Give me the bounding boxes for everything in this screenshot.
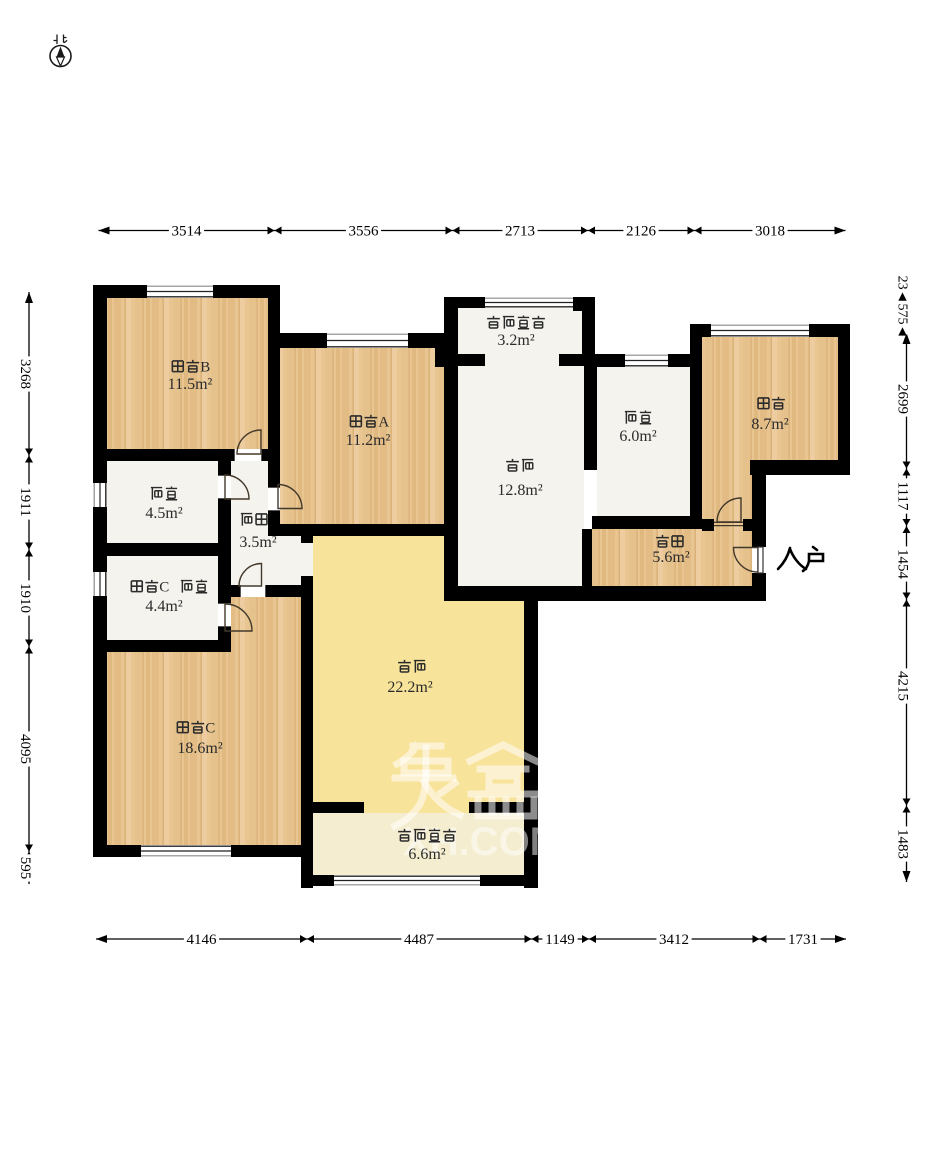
svg-text:5.6m²: 5.6m² xyxy=(652,549,689,566)
svg-text:6.6m²: 6.6m² xyxy=(408,846,445,863)
svg-text:3514: 3514 xyxy=(172,224,203,240)
svg-text:11.5m²: 11.5m² xyxy=(168,376,213,393)
svg-text:6.0m²: 6.0m² xyxy=(619,428,656,445)
svg-text:1483: 1483 xyxy=(894,829,910,859)
svg-text:2699: 2699 xyxy=(894,384,910,414)
svg-text:C: C xyxy=(205,721,215,737)
svg-text:8.7m²: 8.7m² xyxy=(751,416,788,433)
svg-text:11.2m²: 11.2m² xyxy=(346,432,391,449)
svg-text:2713: 2713 xyxy=(505,224,535,240)
svg-text:4146: 4146 xyxy=(187,932,218,948)
svg-text:1731: 1731 xyxy=(788,932,818,948)
svg-text:1911: 1911 xyxy=(17,487,33,516)
svg-text:4.5m²: 4.5m² xyxy=(145,505,182,522)
svg-text:23◄575◄: 23◄575◄ xyxy=(894,276,909,339)
svg-text:4487: 4487 xyxy=(404,932,435,948)
svg-text:B: B xyxy=(200,360,210,376)
svg-text:1117: 1117 xyxy=(894,482,910,511)
svg-text:3018: 3018 xyxy=(755,224,785,240)
svg-text:4215: 4215 xyxy=(894,671,910,701)
svg-text:A: A xyxy=(378,415,389,431)
svg-text:3.5m²: 3.5m² xyxy=(239,534,276,551)
svg-text:C: C xyxy=(159,580,169,596)
svg-text:2126: 2126 xyxy=(626,224,657,240)
svg-text:1454: 1454 xyxy=(894,549,910,580)
svg-text:4.4m²: 4.4m² xyxy=(145,598,182,615)
svg-text:595: 595 xyxy=(17,857,33,880)
svg-text:1910: 1910 xyxy=(17,583,33,613)
svg-text:18.6m²: 18.6m² xyxy=(177,740,222,757)
svg-text:3412: 3412 xyxy=(659,932,689,948)
svg-text:3268: 3268 xyxy=(17,359,33,389)
svg-text:22.2m²: 22.2m² xyxy=(387,679,432,696)
svg-text:1149: 1149 xyxy=(545,932,574,948)
svg-text:12.8m²: 12.8m² xyxy=(497,482,542,499)
svg-text:3.2m²: 3.2m² xyxy=(497,332,534,349)
svg-text:3556: 3556 xyxy=(349,224,380,240)
svg-text:4095: 4095 xyxy=(17,734,33,764)
